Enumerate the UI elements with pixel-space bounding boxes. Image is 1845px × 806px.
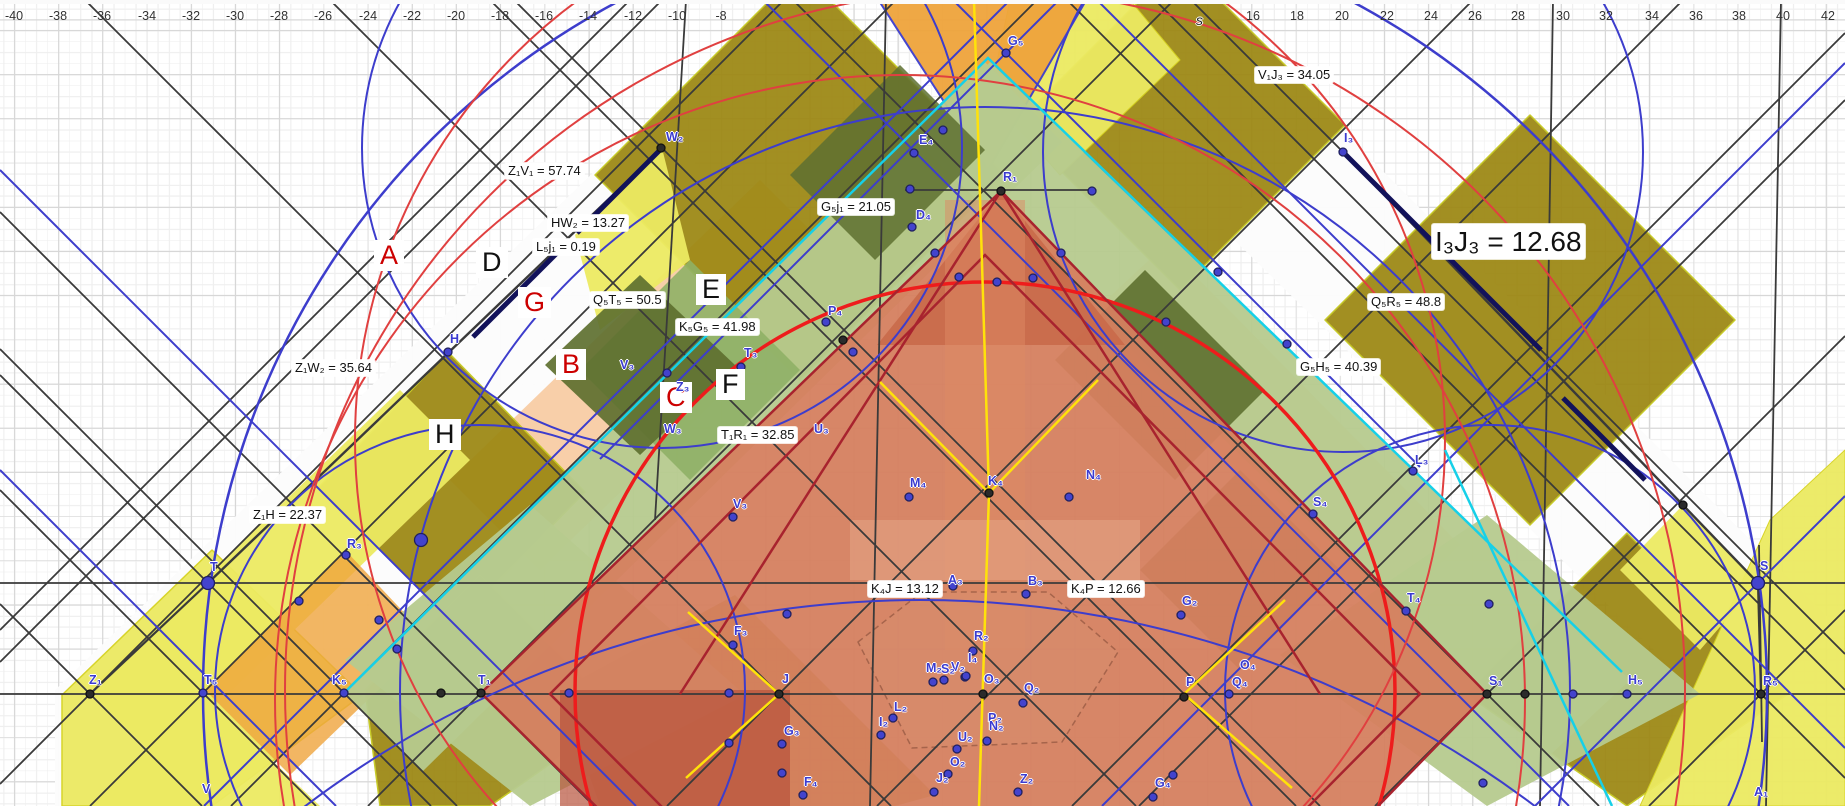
point-label[interactable]: I₃	[1344, 131, 1353, 145]
axis-tick: 40	[1776, 9, 1790, 23]
point-label[interactable]: Q₂	[1024, 681, 1039, 695]
point-label[interactable]: G₅	[1008, 34, 1023, 48]
point-label[interactable]: s	[1196, 12, 1203, 28]
geometry-canvas[interactable]: -40-38-36-34-32-30-28-26-24-22-20-18-16-…	[0, 0, 1845, 806]
point-label[interactable]: T₃	[744, 346, 757, 360]
measurement-label[interactable]: Z₁V₁ = 57.74	[505, 163, 584, 179]
point-label[interactable]: T₄	[1407, 591, 1421, 605]
point-label[interactable]: E₄	[919, 133, 933, 147]
measurement-label[interactable]: L₅j₁ = 0.19	[533, 239, 599, 255]
axis-tick: -10	[668, 9, 686, 23]
point-label[interactable]: U₃	[814, 422, 829, 436]
point-label[interactable]: H₅	[1628, 673, 1643, 687]
measurement-label[interactable]: K₄P = 12.66	[1068, 581, 1144, 597]
point-label[interactable]: G₃	[784, 724, 800, 738]
axis-tick: 24	[1424, 9, 1438, 23]
point-label[interactable]: S	[1760, 559, 1768, 573]
axis-tick: -32	[182, 9, 200, 23]
axis-tick: 34	[1645, 9, 1659, 23]
letter-label[interactable]: H	[429, 419, 461, 450]
axis-tick: 38	[1732, 9, 1746, 23]
point-label[interactable]: R₃	[347, 537, 362, 551]
axis-tick: 26	[1468, 9, 1482, 23]
point-label[interactable]: U₂	[958, 730, 973, 744]
point-label[interactable]: Z₃	[676, 380, 689, 394]
point-label[interactable]: S₄	[1313, 495, 1327, 509]
axis-tick: -40	[5, 9, 23, 23]
point-label[interactable]: G₂	[1182, 594, 1197, 608]
point-label[interactable]: O₄	[1240, 658, 1256, 672]
toolbar-edge	[0, 0, 1845, 4]
axis-tick: 32	[1599, 9, 1613, 23]
axis-tick: -16	[535, 9, 553, 23]
point-label[interactable]: K₅	[332, 673, 347, 687]
axis-tick: -22	[403, 9, 421, 23]
axis-tick: -30	[226, 9, 244, 23]
axis-tick: -12	[624, 9, 642, 23]
point-label[interactable]: T₅	[204, 673, 217, 687]
point-label[interactable]: O₃	[984, 672, 1000, 686]
axis-tick: -8	[715, 9, 726, 23]
point-label[interactable]: O₂	[950, 755, 965, 769]
labels-overlay: -40-38-36-34-32-30-28-26-24-22-20-18-16-…	[0, 0, 1845, 806]
point-label[interactable]: I₄	[968, 651, 977, 665]
axis-tick: 42	[1821, 9, 1835, 23]
measurement-label[interactable]: Q₅R₅ = 48.8	[1368, 294, 1444, 310]
point-label[interactable]: N₂	[989, 719, 1004, 733]
axis-tick: 36	[1689, 9, 1703, 23]
measurement-label[interactable]: I₃J₃ = 12.68	[1432, 224, 1585, 259]
point-label[interactable]: W₂	[666, 130, 683, 144]
letter-label[interactable]: A	[374, 240, 404, 271]
measurement-label[interactable]: Z₁H = 22.37	[250, 507, 325, 523]
letter-label[interactable]: G	[518, 287, 551, 318]
point-label[interactable]: V	[202, 782, 210, 796]
axis-tick: 18	[1290, 9, 1304, 23]
point-label[interactable]: A₁	[1754, 785, 1768, 799]
point-label[interactable]: R₁	[1003, 170, 1017, 184]
point-label[interactable]: P	[1186, 675, 1194, 689]
point-label[interactable]: T	[210, 560, 218, 574]
letter-label[interactable]: E	[696, 274, 726, 305]
axis-tick: -24	[359, 9, 377, 23]
axis-tick: -20	[447, 9, 465, 23]
axis-tick: -36	[93, 9, 111, 23]
point-label[interactable]: L₂	[894, 700, 907, 714]
point-label[interactable]: F₄	[804, 775, 818, 789]
point-label[interactable]: R₂	[974, 629, 989, 643]
point-label[interactable]: F₃	[734, 624, 747, 638]
point-label[interactable]: L₃	[1415, 453, 1428, 467]
letter-label[interactable]: F	[716, 369, 745, 400]
letter-label[interactable]: D	[476, 247, 508, 278]
measurement-label[interactable]: G₅j₁ = 21.05	[818, 199, 894, 215]
point-label[interactable]: S₂	[941, 662, 955, 676]
point-label[interactable]: Z₁	[89, 673, 102, 687]
point-label[interactable]: Q₄	[1232, 675, 1248, 689]
point-label[interactable]: W₃	[664, 422, 682, 436]
point-label[interactable]: G₄	[1155, 776, 1171, 790]
point-label[interactable]: N₄	[1086, 468, 1101, 482]
axis-tick: 16	[1246, 9, 1260, 23]
letter-label[interactable]: B	[556, 349, 586, 380]
point-label[interactable]: H	[450, 332, 459, 346]
point-label[interactable]: D₄	[916, 208, 931, 222]
point-label[interactable]: M₂	[926, 661, 942, 675]
point-label[interactable]: S₁	[1489, 674, 1503, 688]
axis-tick: -26	[314, 9, 332, 23]
point-label[interactable]: R₅	[1763, 674, 1778, 688]
point-label[interactable]: B₃	[1028, 574, 1043, 588]
measurement-label[interactable]: HW₂ = 13.27	[548, 215, 628, 231]
axis-tick: -38	[49, 9, 67, 23]
measurement-label[interactable]: K₄J = 13.12	[868, 581, 942, 597]
point-label[interactable]: V₃	[733, 497, 747, 511]
point-label[interactable]: I₂	[879, 715, 888, 729]
axis-tick: 28	[1511, 9, 1525, 23]
point-label[interactable]: Z₂	[1020, 772, 1033, 786]
measurement-label[interactable]: V₁J₃ = 34.05	[1255, 67, 1333, 83]
measurement-label[interactable]: G₅H₅ = 40.39	[1297, 359, 1380, 375]
axis-tick: -34	[138, 9, 156, 23]
axis-tick: -18	[491, 9, 509, 23]
point-label[interactable]: J₂	[936, 771, 949, 785]
axis-tick: 22	[1380, 9, 1394, 23]
point-label[interactable]: P₄	[828, 304, 842, 318]
axis-tick: 20	[1335, 9, 1349, 23]
axis-tick: -14	[579, 9, 597, 23]
measurement-label[interactable]: Z₁W₂ = 35.64	[292, 360, 375, 376]
point-label[interactable]: T₁	[478, 673, 491, 687]
measurement-label[interactable]: K₅G₅ = 41.98	[676, 319, 759, 335]
point-label[interactable]: J	[782, 672, 789, 686]
axis-tick: -28	[270, 9, 288, 23]
point-label[interactable]: A₃	[948, 573, 963, 587]
measurement-label[interactable]: T₁R₁ = 32.85	[718, 427, 797, 443]
axis-tick: 30	[1556, 9, 1570, 23]
measurement-label[interactable]: Q₅T₅ = 50.5	[590, 292, 665, 308]
point-label[interactable]: M₄	[910, 476, 926, 490]
point-label[interactable]: K₄	[988, 474, 1003, 488]
point-label[interactable]: V₃	[620, 358, 634, 372]
